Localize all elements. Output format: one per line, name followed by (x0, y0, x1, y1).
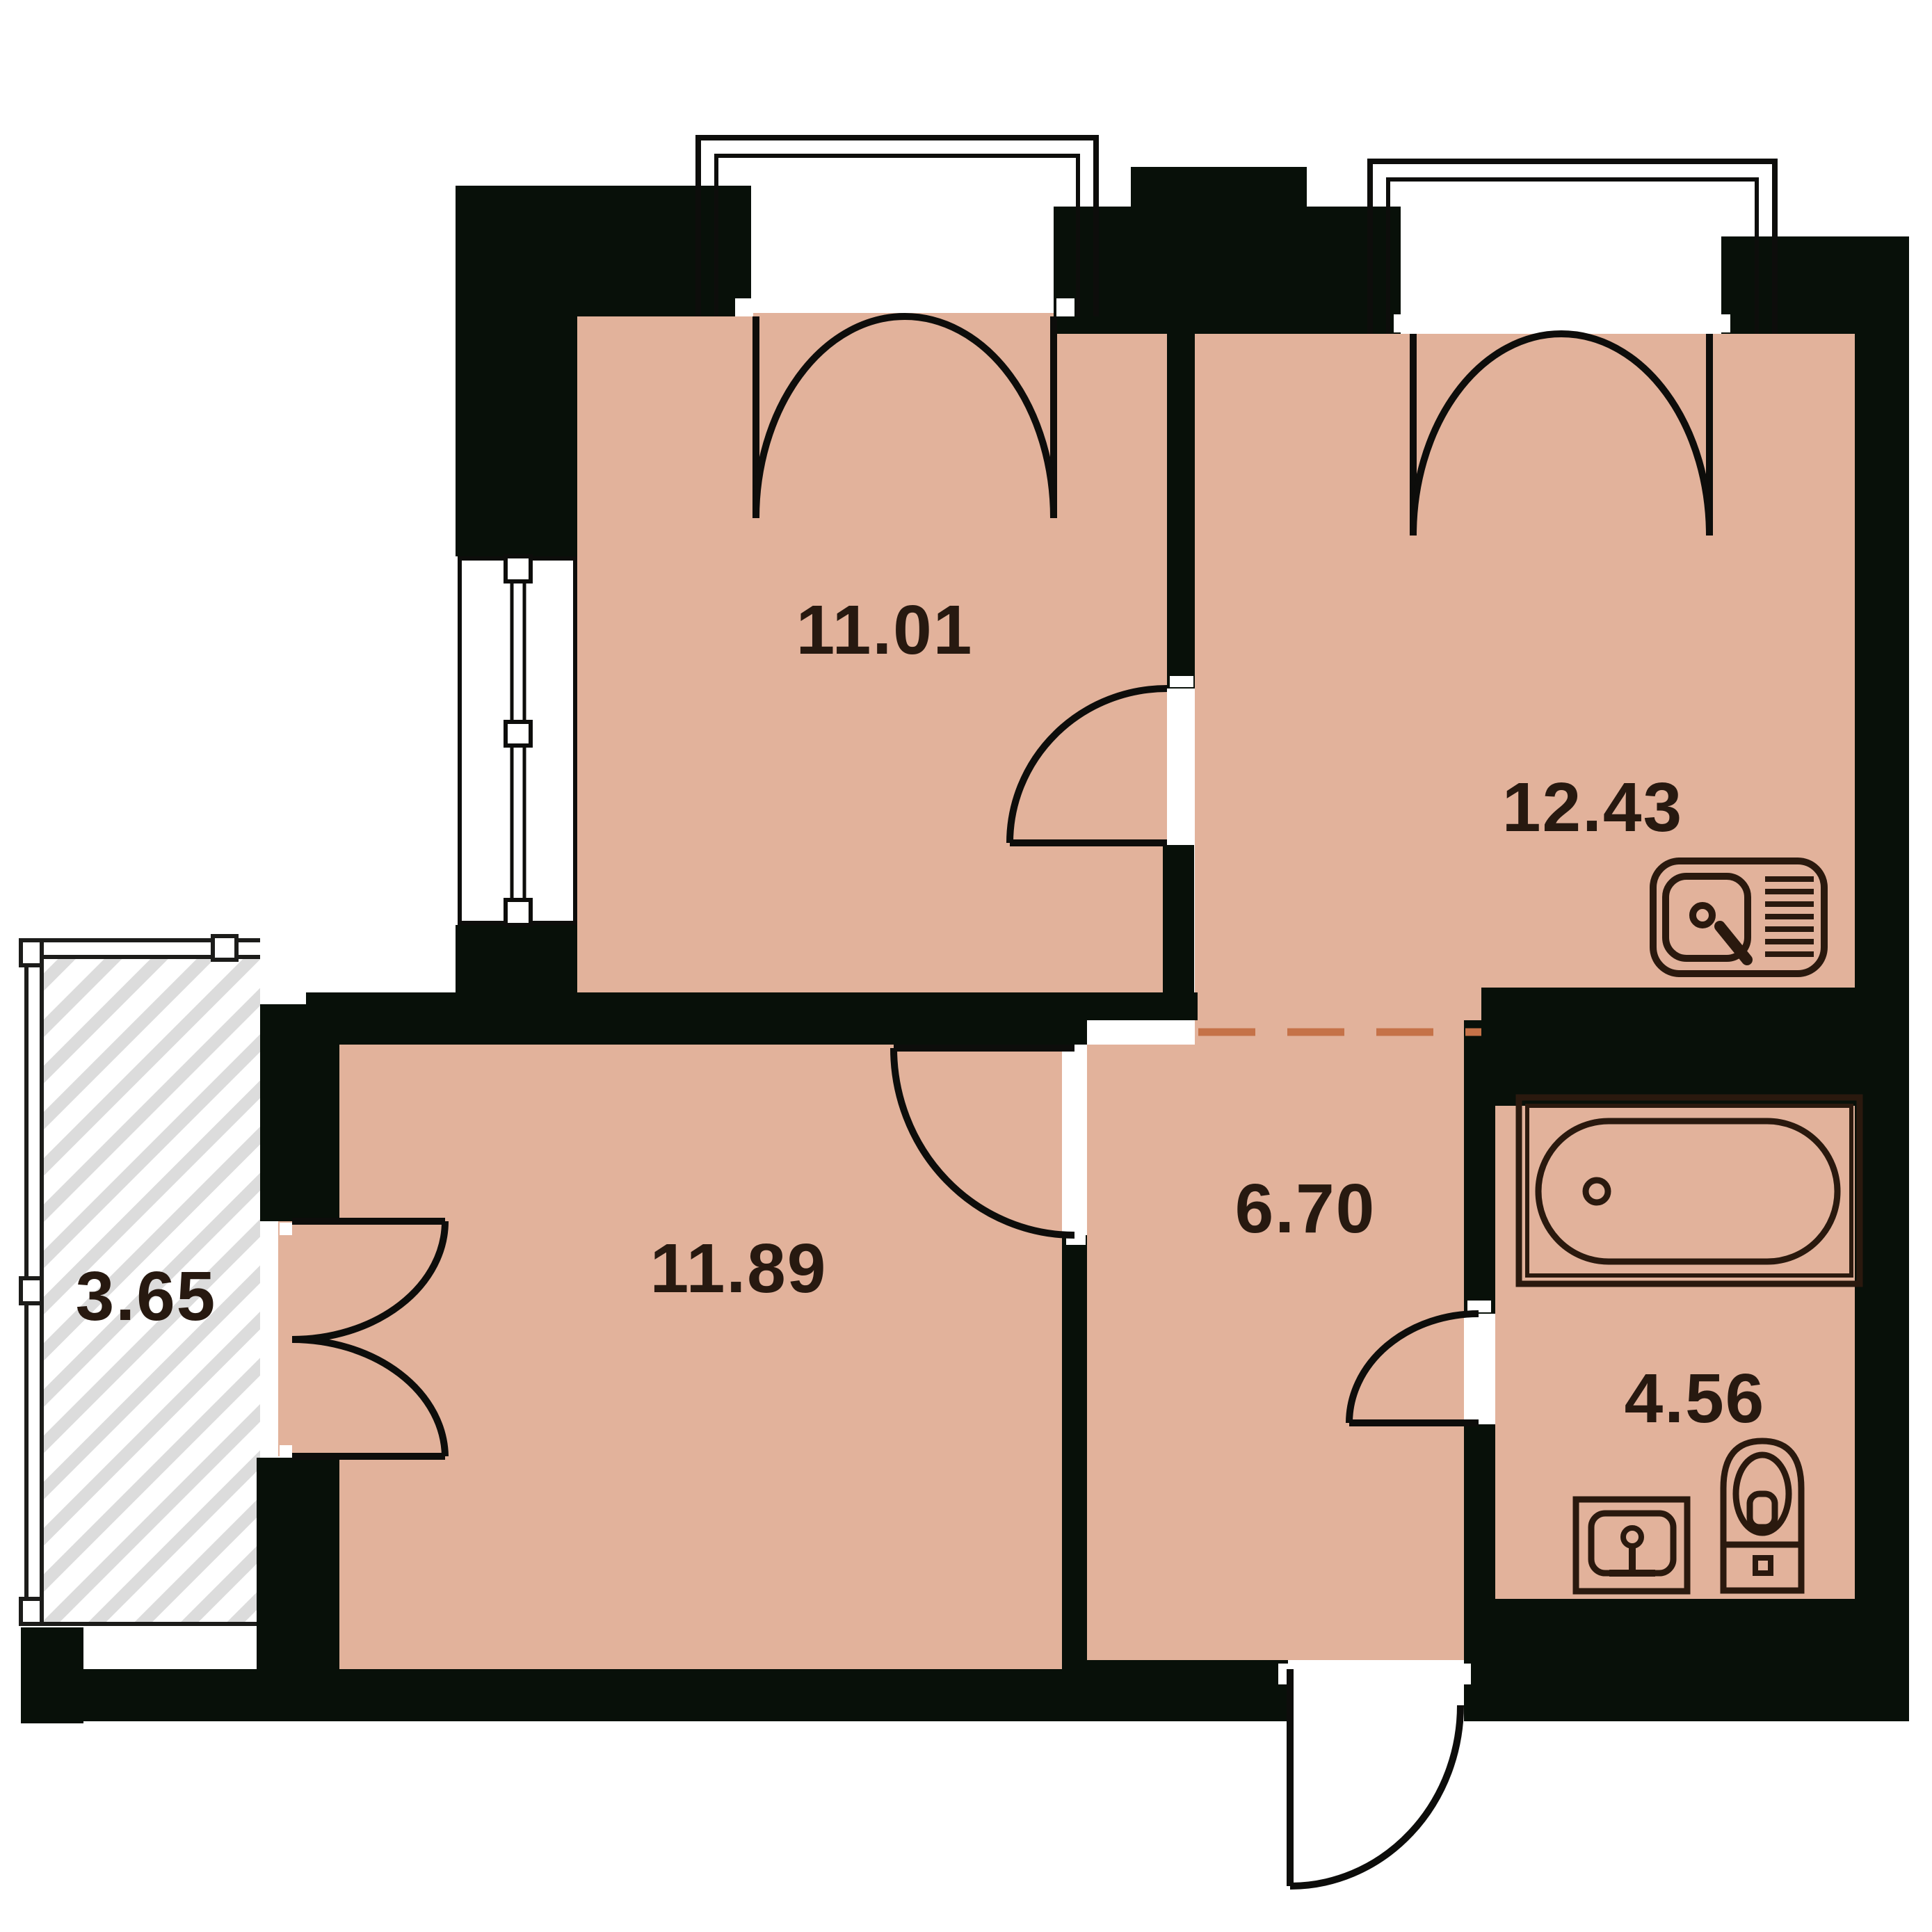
floor-plan-canvas: 11.01 12.43 11.89 6.70 4.56 3.65 (0, 0, 1932, 1932)
wall-bathroom-top (1481, 988, 1909, 1106)
wall-top-right (1721, 236, 1855, 334)
label-bathroom: 4.56 (1625, 1360, 1766, 1438)
kitchen-living-floor (1195, 334, 1855, 988)
kitchen-hall-bridge-floor (1195, 988, 1481, 1045)
wall-top-left (456, 186, 751, 316)
wall-partition-upper (1167, 316, 1195, 689)
wall-balcony-upper (260, 1004, 339, 1221)
label-hallway: 6.70 (1235, 1170, 1376, 1248)
wall-bathroom-left-upper (1464, 1020, 1495, 1314)
room-bottom-left-floor (334, 1045, 1062, 1669)
wall-bathroom-bottom (1464, 1599, 1909, 1660)
wall-room2-top-thick (306, 1020, 1087, 1045)
wall-right-outer (1855, 236, 1909, 1652)
label-room-top-left: 11.01 (796, 591, 974, 669)
floor-plan-page: 11.01 12.43 11.89 6.70 4.56 3.65 (0, 0, 1932, 1932)
wall-balcony-lower (257, 1458, 339, 1687)
wall-bathroom-left-lower (1464, 1424, 1495, 1599)
label-room-bottom-left: 11.89 (650, 1230, 828, 1307)
wall-bottom-hall-left (1087, 1660, 1288, 1721)
wall-bottom-left (21, 1669, 1087, 1721)
wall-bottom-right (1464, 1660, 1909, 1721)
label-balcony: 3.65 (76, 1257, 217, 1335)
wall-left-upper (456, 299, 577, 556)
wall-top-middle (1054, 207, 1401, 334)
wall-hall-room2 (1062, 1235, 1087, 1669)
hallway-floor (1087, 1045, 1464, 1660)
label-kitchen-living: 12.43 (1502, 768, 1683, 846)
wall-partition-lower (1163, 845, 1194, 992)
wall-room2-top-thin (306, 992, 1198, 1020)
wall-top-middle-step (1131, 167, 1307, 207)
